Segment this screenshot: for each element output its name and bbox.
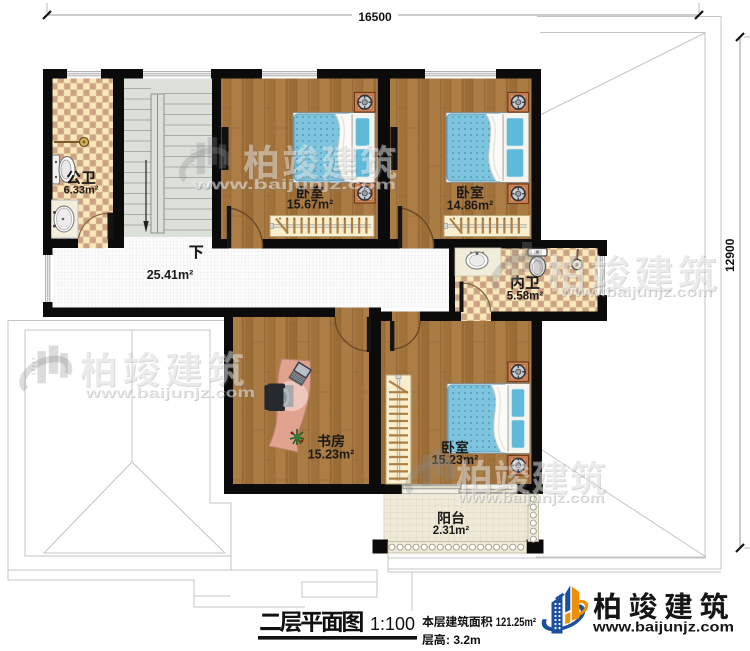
svg-text:6.33m²: 6.33m² [64, 185, 99, 197]
svg-text:www.baijunjz.com: www.baijunjz.com [559, 284, 712, 299]
svg-text:www.baijunjz.com: www.baijunjz.com [457, 490, 604, 505]
svg-text:: 3.2m: : 3.2m [446, 633, 481, 647]
svg-text:12900: 12900 [723, 238, 737, 272]
svg-text:www.baijunjz.com: www.baijunjz.com [191, 177, 396, 192]
svg-text:16500: 16500 [358, 10, 392, 24]
svg-text:5.58m²: 5.58m² [507, 291, 544, 303]
svg-text:15.23m²: 15.23m² [308, 448, 355, 462]
svg-text:2.31m²: 2.31m² [433, 525, 470, 537]
svg-text:www.baijunjz.com: www.baijunjz.com [84, 385, 255, 400]
svg-text:1:100: 1:100 [370, 614, 415, 634]
svg-text:25.41m²: 25.41m² [147, 268, 194, 282]
svg-text:14.86m²: 14.86m² [447, 199, 494, 213]
svg-text:: 121.25m²: : 121.25m² [490, 615, 536, 629]
svg-text:www.baijunjz.com: www.baijunjz.com [592, 620, 734, 635]
svg-text:15.67m²: 15.67m² [287, 198, 334, 212]
